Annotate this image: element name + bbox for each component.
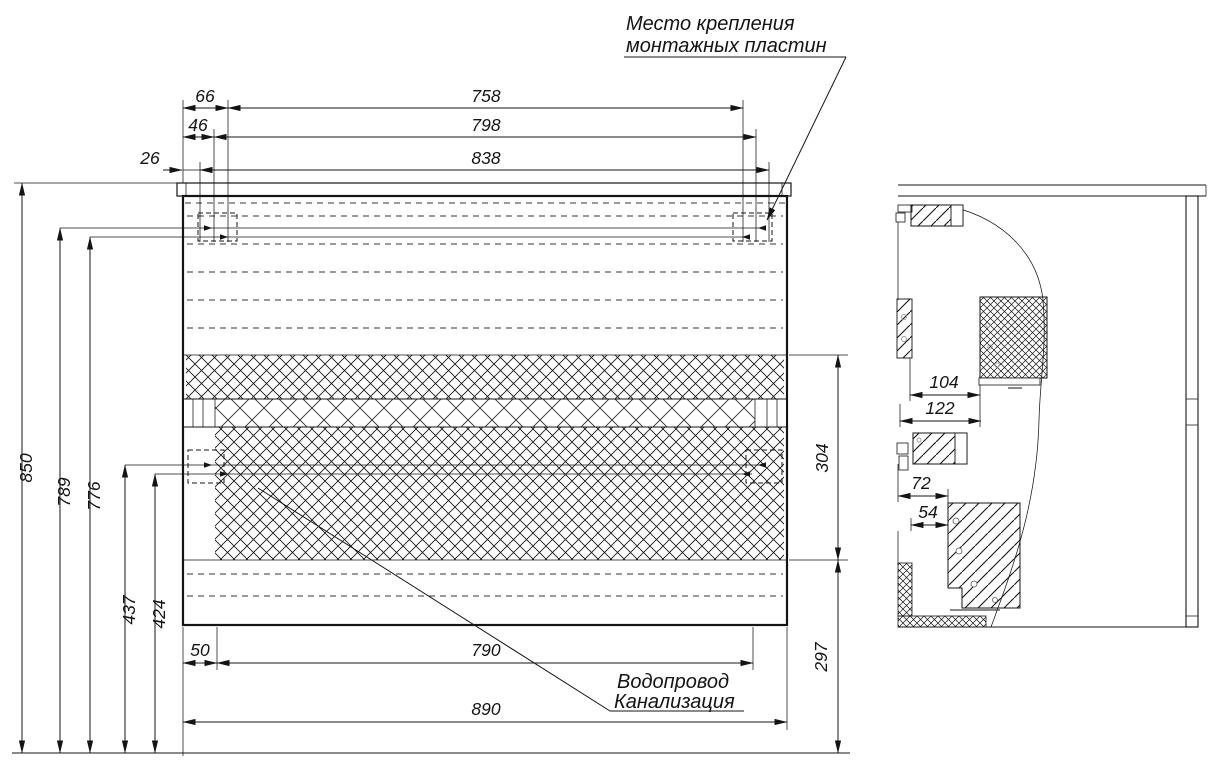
side-lower-section-block <box>948 503 1020 608</box>
dim-side-122: 122 <box>925 398 954 418</box>
dim-top-838: 838 <box>471 148 500 168</box>
dim-left-850: 850 <box>16 453 36 482</box>
mounting-note-line2: монтажных пластин <box>626 35 827 57</box>
plumbing-note-line2: Канализация <box>614 691 735 713</box>
dim-top-46: 46 <box>188 115 208 135</box>
mounting-note-leader <box>767 57 846 220</box>
dim-left-437: 437 <box>119 594 139 624</box>
side-upper-section-block <box>980 297 1047 378</box>
dim-right-304: 304 <box>812 443 832 472</box>
dim-right-297: 297 <box>811 641 831 672</box>
dim-left-789: 789 <box>54 477 74 506</box>
side-bottom-strip-section <box>898 616 986 627</box>
mounting-note-line1: Место крепления <box>626 13 795 35</box>
dim-side-104: 104 <box>929 372 958 392</box>
plumbing-note-line1: Водопровод <box>617 671 729 693</box>
side-view: 104 122 72 54 <box>896 185 1206 627</box>
dim-top-66: 66 <box>195 86 215 106</box>
dim-left-776: 776 <box>84 481 104 510</box>
dim-side-72: 72 <box>911 473 931 493</box>
dim-bottom-50: 50 <box>190 640 210 660</box>
dim-top-758: 758 <box>471 86 500 106</box>
dim-side-54: 54 <box>918 502 938 522</box>
side-hinge-plate <box>897 299 912 358</box>
dims-right: 304 297 <box>789 355 848 753</box>
side-back-panel <box>1186 196 1198 627</box>
technical-drawing: 66 758 46 798 26 838 850 789 776 437 424… <box>0 0 1209 769</box>
side-bottom-column-section <box>898 563 912 616</box>
countertop-edge <box>177 183 791 196</box>
crosshatch-band-upper <box>186 355 784 399</box>
drawer-gap-band <box>183 399 787 427</box>
dim-bottom-890: 890 <box>471 699 500 719</box>
dim-top-26: 26 <box>139 148 160 168</box>
crosshatch-band-lower <box>215 427 784 560</box>
dim-left-424: 424 <box>149 599 169 628</box>
front-view <box>60 183 791 625</box>
dim-bottom-790: 790 <box>471 640 500 660</box>
drawing-canvas: 66 758 46 798 26 838 850 789 776 437 424… <box>0 0 1209 769</box>
dim-top-798: 798 <box>471 115 500 135</box>
